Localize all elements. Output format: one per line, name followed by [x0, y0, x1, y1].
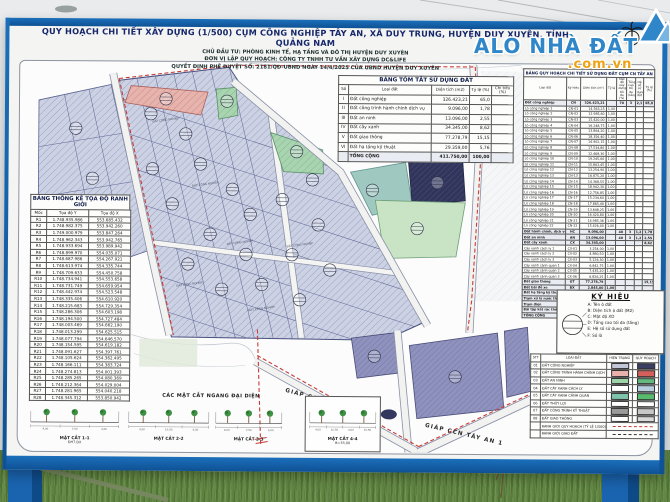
table-cell: 1.748.212.364	[46, 381, 88, 388]
table-cell: 1,78	[469, 105, 491, 115]
tree-icon	[166, 410, 172, 416]
symbol-legend-item: D: Tầng cao tối đa (tầng)	[587, 320, 663, 326]
symbol-legend-item: F: Số lô	[587, 332, 663, 338]
table-cell: 1.748.285.265	[46, 374, 88, 381]
legend-swatch-cell	[607, 377, 633, 385]
svg-text:7,50: 7,50	[246, 428, 252, 432]
table-cell: 1.748.105.624	[46, 355, 88, 362]
table-cell: 411.750,00	[431, 153, 469, 163]
table-title: BẢNG THỐNG KÊ TỌA ĐỘ RANH GIỚI	[30, 194, 130, 210]
table-cell: 326.423,21	[431, 95, 469, 105]
legend-swatch-cell	[606, 415, 632, 423]
table-cell: III	[338, 113, 348, 123]
lot-marker	[182, 258, 194, 270]
legend-swatch-cell	[606, 385, 632, 393]
color-swatch	[636, 416, 654, 423]
symbol-legend-title: KÝ HIỆU	[558, 293, 664, 302]
color-swatch	[610, 393, 628, 400]
legend-stt: 01	[531, 361, 541, 369]
table-cell: 1.748.194.500	[46, 315, 88, 322]
cross-section-drawing: 4,007,504,00	[214, 399, 284, 431]
table-cell: 15,15	[642, 280, 653, 286]
lot-marker	[226, 183, 238, 195]
power-line	[598, 0, 670, 13]
cross-section: 4,0010,504,00MẶT CẮT 2-2	[127, 399, 211, 441]
table-cell	[491, 143, 513, 153]
tree-icon	[72, 409, 78, 415]
table-cell: 1.748.215.683	[46, 302, 88, 309]
color-swatch	[636, 401, 654, 408]
table-cell: 34.345,00	[431, 124, 469, 134]
data-table: SốLoại đấtDiện tích (m2)Tỷ lệ (%)Chỉ tiê…	[338, 84, 515, 163]
distant-tree	[55, 6, 77, 13]
svg-text:4,00: 4,00	[348, 428, 354, 432]
legend-swatch-cell	[606, 408, 632, 416]
svg-text:7,50: 7,50	[72, 427, 78, 431]
svg-text:4,00: 4,00	[192, 428, 198, 432]
column-header: Tầng cao tối đa (tầng)	[627, 78, 636, 101]
lot-marker	[145, 107, 157, 119]
table-cell: V	[338, 133, 348, 143]
color-swatch	[637, 363, 655, 370]
data-table: Loại đấtKý hiệuDiện tích (m²)Tỷ lệMật độ…	[521, 76, 655, 319]
lot-marker	[286, 248, 298, 260]
tree-icon	[100, 409, 106, 415]
lot-marker	[215, 283, 227, 295]
table-cell: 77.278,79	[431, 133, 469, 143]
table-cell: 1.748.274.813	[46, 368, 88, 375]
cross-section-drawing: 4,007,504,00	[29, 398, 121, 431]
legend-stt: 05	[530, 392, 540, 400]
lot-marker	[411, 222, 423, 234]
color-legend: STTLOẠI ĐẤTHIỆN TRẠNGQUY HOẠCH01ĐẤT CÔNG…	[530, 353, 660, 438]
lot-marker	[449, 371, 461, 383]
landuse-detail-table: BẢNG QUY HOẠCH CHI TIẾT SỬ DỤNG ĐẤT CỤM …	[521, 68, 655, 319]
column-header: Hệ số sử dụng đất	[635, 78, 644, 101]
color-swatch	[636, 393, 654, 400]
legend-swatch-cell	[607, 362, 633, 370]
color-swatch	[610, 408, 628, 415]
table-cell: 1.748.335.406	[46, 295, 88, 302]
svg-text:4,00: 4,00	[315, 427, 321, 431]
legend-stt: 08	[530, 415, 540, 423]
header-row: Loại đấtKý hiệuDiện tích (m²)Tỷ lệMật độ…	[524, 77, 655, 101]
landuse-summary-table: BẢNG TÓM TẮT SỬ DỤNG ĐẤTSốLoại đấtDiện t…	[338, 75, 515, 163]
column-header: Tỷ lệ	[606, 77, 617, 100]
legend-label: RANH GIỚI GIAO ĐẤT	[540, 430, 606, 438]
table-cell: 1.748.077.794	[46, 335, 88, 342]
legend-swatch-cell	[633, 377, 659, 385]
color-swatch	[636, 408, 654, 415]
color-swatch	[610, 416, 628, 423]
table-cell: 29.359,00	[431, 143, 469, 153]
lot-marker	[240, 248, 252, 260]
svg-text:4,00: 4,00	[224, 428, 230, 432]
table-cell: 1.748.935.986	[47, 216, 89, 223]
tree-icon	[267, 410, 273, 416]
legend-swatch-cell	[633, 370, 659, 378]
color-legend-table: STTLOẠI ĐẤTHIỆN TRẠNGQUY HOẠCH01ĐẤT CÔNG…	[530, 353, 659, 438]
cross-section-label: MẶT CẮT 2-2	[127, 435, 211, 441]
table-cell: 8,62	[643, 240, 654, 246]
symbol-legend-item: E: Hệ số sử dụng đất	[587, 326, 663, 332]
cross-sections-strip: CÁC MẶT CẮT NGANG ĐẠI DIỆN 4,0010,504,00…	[23, 390, 373, 450]
tree-icon	[361, 410, 367, 416]
svg-text:4,00: 4,00	[268, 428, 274, 432]
legend-swatch-cell	[632, 393, 658, 401]
lot-marker	[160, 93, 172, 105]
column-header: Diện tích (m2)	[431, 85, 469, 95]
table-cell: 2,55	[469, 114, 491, 124]
table-cell: 1.748.613.974	[46, 262, 88, 269]
legend-stt: 03	[531, 377, 541, 385]
legend-swatch-cell	[606, 400, 632, 408]
symbol-legend: KÝ HIỆU A: Tên ô đấtB: Diện tích ô đất (…	[556, 290, 664, 355]
table-cell	[338, 152, 348, 162]
table-cell: VI	[338, 142, 348, 152]
table-cell: 9.096,00	[431, 105, 469, 115]
color-swatch	[611, 378, 629, 385]
lot-marker	[204, 228, 216, 240]
title-block: QUY HOẠCH CHI TIẾT XÂY DỰNG (1/500) CỤM …	[25, 26, 585, 72]
planning-signboard: QUY HOẠCH CHI TIẾT XÂY DỰNG (1/500) CỤM …	[2, 18, 667, 475]
pond	[381, 409, 397, 419]
cross-section: 4,0010,504,0010,50MẶT CẮT 4-4B=33,00	[308, 399, 378, 445]
table-cell	[491, 134, 513, 144]
svg-text:4,00: 4,00	[42, 427, 48, 431]
svg-text:10,50: 10,50	[331, 428, 339, 432]
table-cell: 1.748.013.299	[46, 328, 88, 335]
color-swatch	[610, 401, 628, 408]
svg-text:10,50: 10,50	[165, 427, 173, 431]
legend-swatch-cell	[632, 415, 658, 423]
color-swatch	[637, 378, 655, 385]
leg-brace	[40, 468, 168, 500]
table-cell: 1.749.000.979	[47, 229, 89, 236]
symbol-legend-item: C: Mật độ XD	[587, 314, 663, 320]
table-cell: 1.748.687.986	[46, 256, 88, 263]
column-header: QUY HOẠCH	[633, 355, 659, 363]
legend-swatch-cell	[606, 392, 632, 400]
column-header: Mật độ xây dựng tối đa (%)	[617, 77, 627, 100]
legend-stt	[530, 422, 540, 430]
symbol-legend-item: A: Tên ô đất	[588, 302, 664, 308]
tree-icon	[140, 409, 146, 415]
column-header: HIỆN TRẠNG	[607, 354, 633, 362]
cross-section: 4,007,504,00MẶT CẮT 3-3	[214, 399, 284, 441]
legend-swatch-cell	[632, 385, 658, 393]
cross-section-sub: B=33,00	[308, 440, 378, 444]
table-cell: Đất an ninh	[348, 114, 431, 124]
tree-icon	[340, 410, 346, 416]
tree-icon	[318, 410, 324, 416]
table-cell: 15,15	[469, 134, 491, 144]
table-cell: 1.748.091.627	[46, 348, 88, 355]
column-header: Chỉ tiêu (%)	[491, 86, 513, 96]
column-header: Ký hiệu	[566, 77, 580, 100]
table-cell: 2,55	[643, 235, 654, 241]
table-cell	[491, 124, 513, 134]
lot-marker	[194, 158, 206, 170]
symbol-legend-item: B: Diện tích ô đất (M2)	[588, 308, 664, 314]
lot-marker	[293, 294, 305, 306]
page-title: QUY HOẠCH CHI TIẾT XÂY DỰNG (1/500) CỤM …	[25, 26, 585, 50]
legend-swatch-cell	[607, 370, 633, 378]
table-cell: 1.748.899.970	[46, 249, 88, 256]
legend-row: RANH GIỚI GIAO ĐẤT	[530, 430, 658, 438]
column-header: Tỷ lệ (%)	[644, 78, 655, 101]
lot-marker	[312, 219, 324, 231]
table-cell	[491, 115, 513, 125]
color-swatch	[636, 386, 654, 393]
table-cell: 65,0	[469, 95, 491, 105]
table-cell: 1.748.166.111	[46, 361, 88, 368]
column-header: Tỷ lệ (%)	[469, 85, 491, 95]
lot-marker	[146, 162, 158, 174]
table-cell: I	[338, 94, 348, 104]
legend-swatch-cell	[632, 408, 658, 416]
table-cell	[491, 95, 513, 105]
table-cell: IV	[338, 123, 348, 133]
legend-stt: 07	[530, 407, 540, 415]
table-cell: 1.748.442.974	[46, 289, 88, 296]
table-cell: TỔNG CỘNG	[348, 152, 431, 162]
cross-section-drawing: 4,0010,504,00	[127, 399, 211, 432]
column-header: STT	[531, 354, 541, 362]
lot-marker	[276, 193, 288, 205]
lot-marker	[255, 278, 267, 290]
color-swatch	[637, 370, 655, 377]
table-cell	[491, 105, 513, 115]
legend-stt: 04	[530, 384, 540, 392]
legend-stt: 02	[531, 369, 541, 377]
lot-marker	[366, 184, 378, 196]
table-cell: 13.096,00	[431, 114, 469, 124]
legend-line-sample	[606, 430, 658, 438]
power-line	[420, 0, 565, 22]
cross-section: 4,007,504,00MẶT CẮT 1-1ĐH7.ĐX	[29, 398, 121, 444]
table-cell: 1.748.154.595	[46, 341, 88, 348]
data-table: MốcTọa độ YTọa độ XR11.748.935.986553.68…	[29, 209, 131, 402]
cross-section-sub: ĐH7.ĐX	[29, 439, 121, 444]
table-cell: Đất công nghiệp	[349, 94, 432, 104]
lot-marker	[368, 350, 380, 362]
legend-swatch-cell	[633, 362, 659, 370]
table-cell: 1.748.709.633	[46, 269, 88, 276]
legend-stt	[530, 430, 540, 438]
lot-marker	[180, 128, 192, 140]
table-cell: Đất cây xanh	[348, 123, 431, 133]
svg-text:4,00: 4,00	[101, 427, 107, 431]
lot-symbol-icon	[560, 305, 586, 345]
table-cell: Đất giao thông	[348, 133, 431, 143]
lot-marker	[324, 264, 336, 276]
lot-marker	[70, 122, 82, 134]
color-swatch	[611, 363, 629, 370]
table-cell: 1.748.982.375	[47, 223, 89, 230]
table-cell: Đất công trình hành chính dịch vụ	[348, 104, 431, 114]
cross-section-label: MẶT CẮT 3-3	[214, 436, 284, 441]
cross-section-drawing: 4,0010,504,0010,50	[308, 399, 378, 431]
lot-marker	[166, 198, 178, 210]
column-header: Số	[339, 85, 349, 95]
tree-icon	[246, 410, 252, 416]
legend-stt: 06	[530, 399, 540, 407]
table-cell: 100,00	[469, 153, 491, 163]
svg-text:10,50: 10,50	[364, 428, 372, 431]
column-header: Loại đất	[349, 85, 432, 95]
table-cell: Đất hạ tầng kỹ thuật	[348, 142, 431, 152]
table-cell: 1.748.734.941	[46, 275, 88, 282]
table-cell: 1.748.731.749	[46, 282, 88, 289]
table-cell: 5,76	[469, 143, 491, 153]
svg-text:4,00: 4,00	[139, 427, 145, 431]
table-cell: 1,78	[643, 229, 654, 235]
lot-marker	[290, 145, 302, 157]
boundary-coordinates-table: BẢNG THỐNG KÊ TỌA ĐỘ RANH GIỚIMốcTọa độ …	[29, 194, 130, 402]
cross-section-inset-box: 4,0010,504,0010,50MẶT CẮT 4-4B=33,00	[305, 396, 381, 453]
lot-marker	[221, 95, 233, 107]
tree-icon	[224, 410, 230, 416]
tree-icon	[191, 410, 197, 416]
lot-marker	[431, 176, 443, 188]
color-swatch	[610, 385, 628, 392]
table-cell: II	[338, 104, 348, 114]
frame-left	[2, 18, 9, 470]
table-cell: 1.748.286.306	[46, 308, 88, 315]
tree-icon	[43, 409, 49, 415]
table-cell	[491, 153, 513, 163]
lot-marker	[244, 208, 256, 220]
frame-right	[659, 22, 667, 474]
lot-marker	[86, 172, 98, 184]
table-cell: 1.748.003.469	[46, 322, 88, 329]
table-cell: 1.748.933.694	[46, 242, 88, 249]
column-header: Diện tích (m²)	[580, 77, 606, 100]
legend-swatch-cell	[632, 400, 658, 408]
color-swatch	[611, 370, 629, 377]
table-row: TỔNG CỘNG411.750,00100,00	[338, 152, 513, 163]
table-cell: 8,62	[469, 124, 491, 134]
column-header: Loại đất	[524, 77, 567, 100]
lot-marker	[306, 174, 318, 186]
table-cell: 1.748.962.343	[47, 236, 89, 243]
